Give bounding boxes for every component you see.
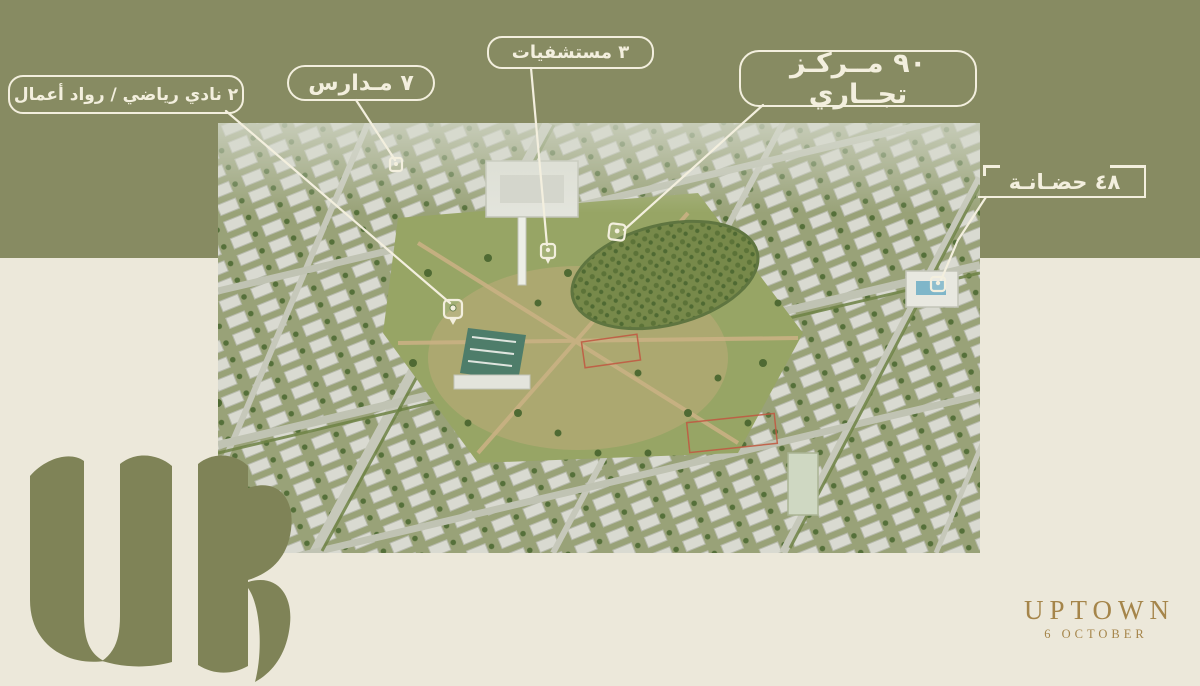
callout-commercial-centers: ٩٠ مــركـز تجــاري bbox=[739, 50, 977, 107]
masterplan-aerial-image bbox=[218, 123, 980, 553]
callout-hospitals: ٣ مستشفيات bbox=[487, 36, 654, 69]
callout-sports-club: ٢ نادي رياضي / رواد أعمال bbox=[8, 75, 244, 114]
ur-monogram-logo bbox=[26, 454, 294, 686]
brand-subname: 6 OCTOBER bbox=[1018, 627, 1170, 642]
uptown-brand-logo: UPTOWN 6 OCTOBER bbox=[1018, 595, 1170, 642]
bracket-line bbox=[1144, 165, 1147, 198]
brochure-slide: { "page": { "background_color": "#ece8da… bbox=[0, 0, 1200, 675]
bracket-line bbox=[978, 196, 1146, 199]
bracket-line bbox=[1110, 165, 1146, 168]
callout-nurseries: ٤٨ حضـانـة bbox=[983, 165, 1146, 198]
aerial-render-graphic bbox=[218, 123, 980, 553]
callout-schools-label: ٧ مـدارس bbox=[308, 71, 414, 96]
callout-nurseries-label: ٤٨ حضـانـة bbox=[1009, 170, 1121, 194]
callout-schools: ٧ مـدارس bbox=[287, 65, 435, 101]
ur-monogram-graphic bbox=[26, 454, 294, 682]
callout-commercial-centers-label: ٩٠ مــركـز تجــاري bbox=[741, 48, 975, 110]
brand-name: UPTOWN bbox=[1018, 595, 1170, 626]
callout-hospitals-label: ٣ مستشفيات bbox=[512, 42, 630, 63]
bracket-line bbox=[983, 165, 1000, 168]
bracket-line bbox=[983, 165, 986, 176]
callout-sports-club-label: ٢ نادي رياضي / رواد أعمال bbox=[14, 85, 238, 105]
